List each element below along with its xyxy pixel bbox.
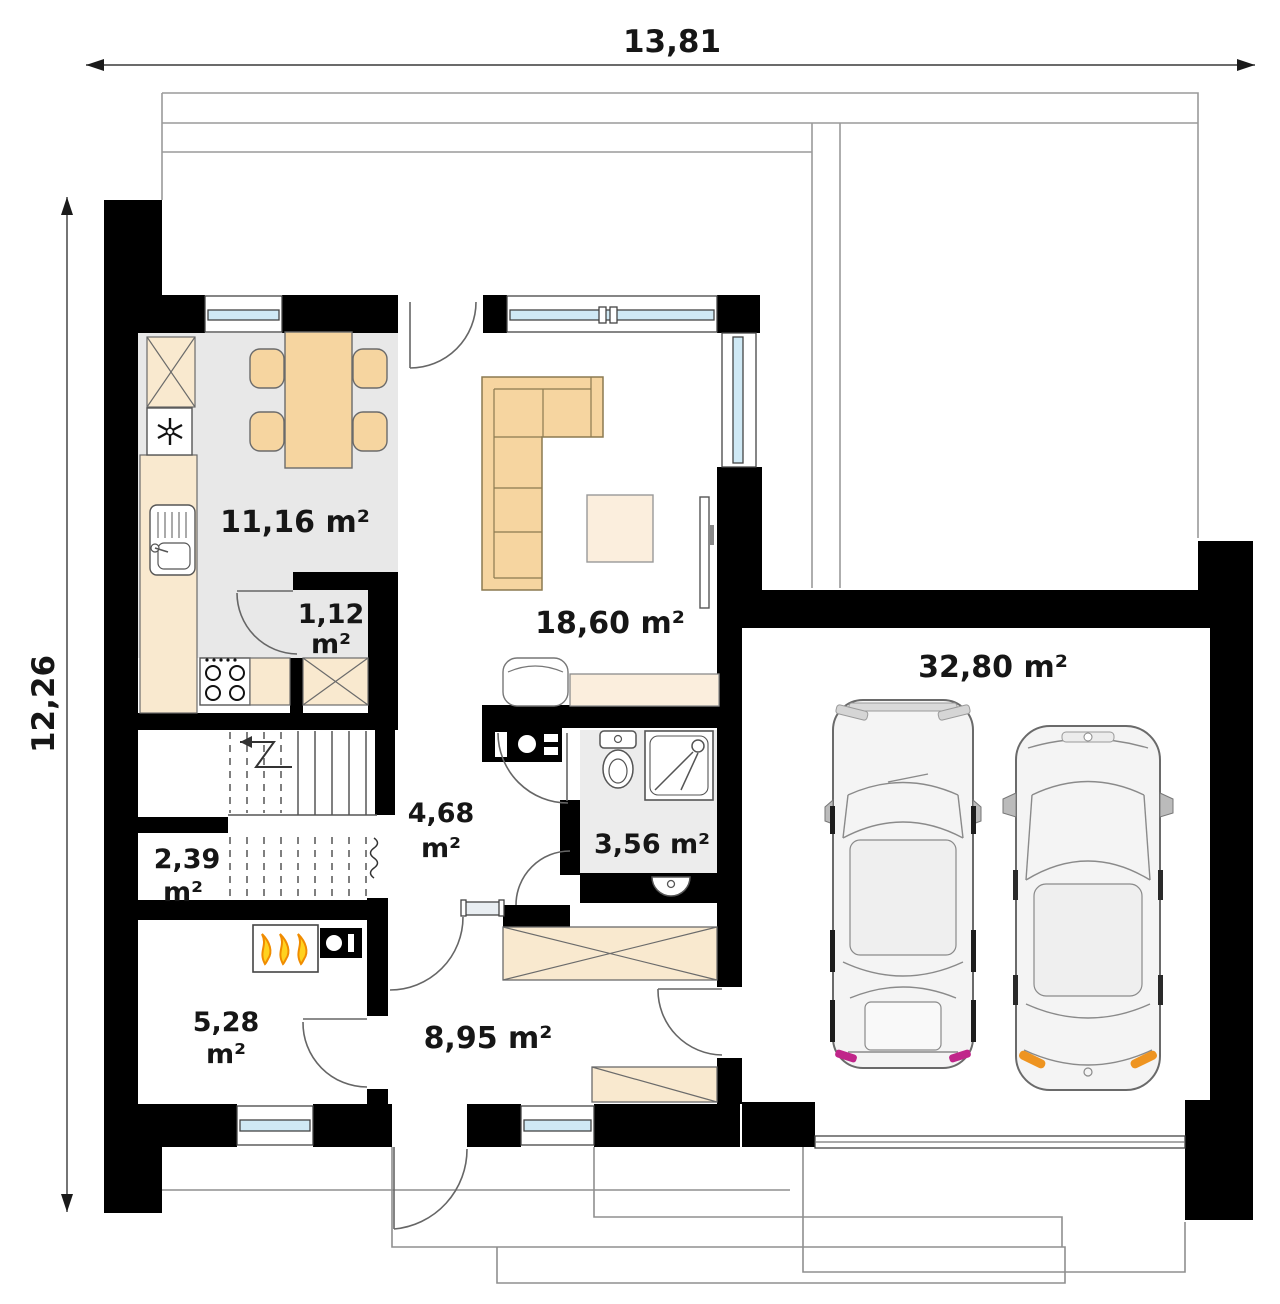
pantry-area-unit: m²: [311, 629, 351, 660]
kitchen-counter: [140, 455, 197, 713]
break-line-icon: [371, 838, 378, 878]
chair: [353, 349, 387, 388]
height-dimension-label: 12,26: [26, 655, 62, 753]
window-entry: [521, 1106, 594, 1145]
width-dimension: 13,81: [86, 24, 1255, 71]
garage-access-door: [658, 989, 722, 1055]
boiler: [253, 925, 318, 972]
garage-cars: [825, 700, 1173, 1090]
floor-plan-drawing: 13,81 12,26: [0, 0, 1280, 1304]
utility-door: [303, 1019, 367, 1087]
stove-icon: [200, 658, 250, 705]
car-mirror: [1003, 793, 1016, 817]
chair: [250, 412, 284, 451]
stairs: [228, 731, 378, 898]
height-dimension: 12,26: [26, 197, 73, 1212]
utility-area-label: 5,28: [193, 1007, 260, 1038]
entry-area-label: 8,95 m²: [424, 1021, 553, 1056]
shower-icon: [645, 731, 713, 800]
stairs-up-arrow-icon: [240, 736, 292, 767]
bathroom-area-label: 3,56 m²: [594, 829, 710, 860]
armchair: [503, 658, 568, 706]
window-living-top: [507, 296, 717, 332]
living-area-label: 18,60 m²: [535, 606, 685, 641]
window-kitchen: [205, 296, 282, 332]
living-furniture: [482, 377, 719, 706]
window-living-right: [722, 333, 756, 467]
kitchen-area-label: 11,16 m²: [220, 505, 370, 540]
dining-table: [285, 332, 352, 468]
counter-piece: [250, 658, 290, 705]
hall-wardrobe: [503, 927, 717, 980]
understairs-area-label: 2,39: [154, 844, 221, 875]
water-heater: [320, 928, 362, 958]
garage-door: [815, 1136, 1185, 1148]
understairs-area-unit: m²: [163, 877, 203, 908]
tall-cabinet: [147, 337, 195, 407]
hall-furniture: [253, 925, 717, 1102]
toilet-icon: [600, 731, 636, 788]
hall-area-label: 4,68: [408, 798, 475, 829]
window-utility: [237, 1106, 313, 1145]
car-hatchback: [1003, 726, 1173, 1090]
chair: [353, 412, 387, 451]
chair: [250, 349, 284, 388]
tv: [700, 497, 714, 608]
entrance-door: [394, 1147, 467, 1229]
sideboard: [570, 674, 719, 706]
fridge: [147, 408, 192, 455]
coffee-table: [587, 495, 653, 562]
shoe-cabinet: [592, 1067, 717, 1102]
garage-area-label: 32,80 m²: [918, 650, 1068, 685]
floor-fills: [138, 333, 717, 875]
corner-sofa: [482, 377, 603, 590]
sink-icon: [150, 505, 195, 575]
car-mirror: [1160, 793, 1173, 817]
utility-area-unit: m²: [206, 1039, 246, 1070]
porch-steps-outline: [162, 1147, 1185, 1283]
width-dimension-label: 13,81: [623, 24, 721, 60]
interior-transom: [461, 900, 504, 916]
pantry-area-label: 1,12: [298, 599, 365, 630]
floor-plan-page: 13,81 12,26: [0, 0, 1280, 1304]
car-sedan: [825, 700, 981, 1068]
pantry-wardrobe: [303, 658, 368, 705]
terrace-door: [410, 302, 476, 368]
hall-area-unit: m²: [421, 833, 461, 864]
